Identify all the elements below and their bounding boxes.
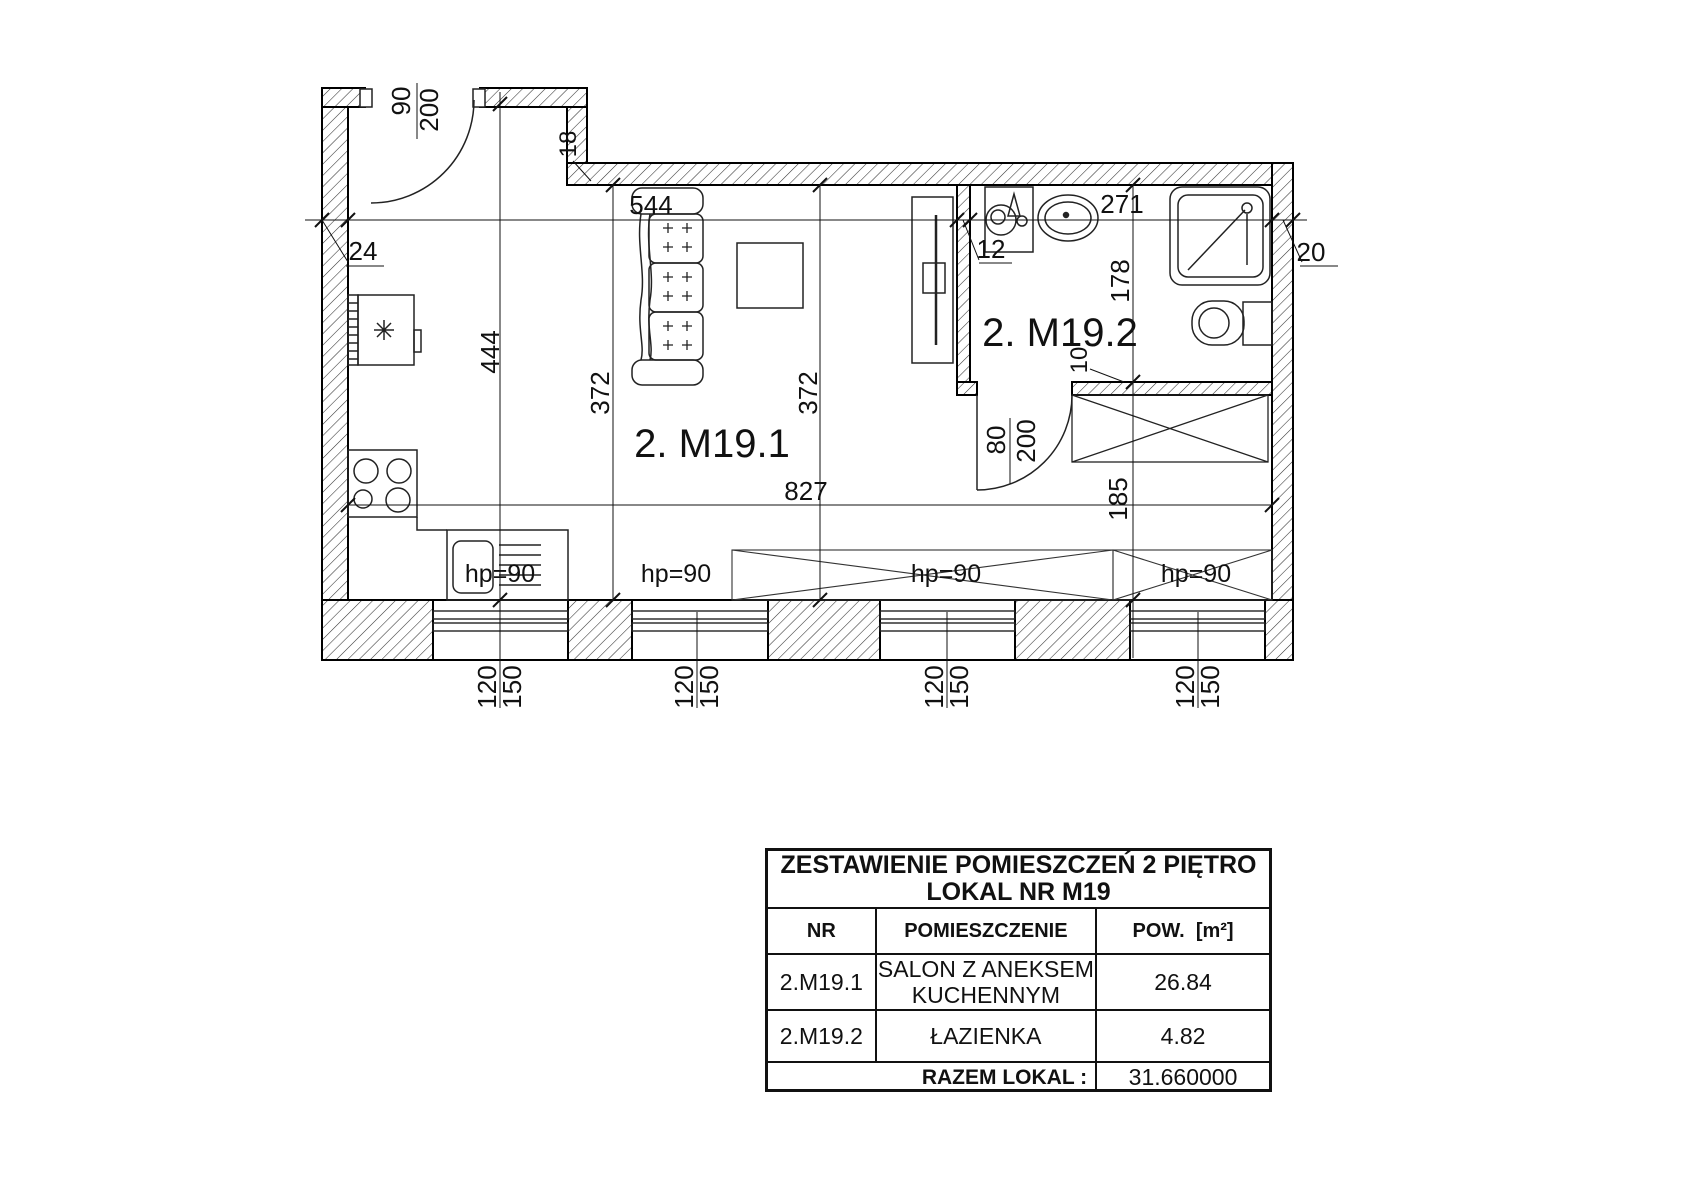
toilet-cistern	[1243, 302, 1272, 345]
toilet-bowl	[1192, 301, 1244, 345]
dim-271: 271	[1100, 189, 1143, 219]
wall-bath-bottom-left	[957, 382, 977, 395]
tv-cabinet	[912, 197, 953, 363]
tv-mount	[923, 263, 945, 293]
table-title: ZESTAWIENIE POMIESZCZEŃ 2 PIĘTRO LOKAL N…	[768, 851, 1269, 907]
wall-pier-1	[322, 600, 433, 660]
kitchen	[348, 295, 568, 600]
window-parapet-label: hp=90	[911, 560, 981, 588]
wall-right	[1272, 163, 1293, 660]
dim-178: 178	[1105, 259, 1135, 302]
wall-top-entry-left	[322, 88, 365, 107]
table-title-line2: LOKAL NR M19	[926, 879, 1110, 906]
hob-burner	[354, 459, 378, 483]
wall-bath-bottom-right	[1072, 382, 1272, 395]
sofa-cushion	[649, 312, 703, 360]
room-schedule-table: ZESTAWIENIE POMIESZCZEŃ 2 PIĘTRO LOKAL N…	[765, 848, 1272, 1092]
wall-top	[567, 163, 1293, 185]
shower-drain	[1242, 203, 1252, 213]
dim-444: 444	[475, 330, 505, 373]
table-title-line1: ZESTAWIENIE POMIESZCZEŃ 2 PIĘTRO	[781, 852, 1257, 879]
entry-door-width: 90	[386, 87, 416, 116]
window-height: 150	[694, 665, 724, 708]
dim-20: 20	[1297, 237, 1326, 267]
fridge-star-icon	[374, 320, 394, 340]
floor-plan-page: 544 271 827 24 12 20 444 372 372 178 185…	[0, 0, 1684, 1190]
wall-top-entry-right	[480, 88, 587, 107]
dim-24: 24	[349, 236, 378, 266]
wall-pier-5	[1265, 600, 1293, 660]
row-room: ŁAZIENKA	[875, 1011, 1095, 1061]
counter-edge	[417, 517, 447, 530]
window-height: 150	[497, 665, 527, 708]
dim-18: 18	[555, 131, 582, 158]
window-parapet-label: hp=90	[1161, 560, 1231, 588]
entry-door-height: 200	[414, 88, 444, 131]
table-total-row: RAZEM LOKAL : 31.660000	[768, 1061, 1269, 1092]
toilet	[1192, 301, 1272, 345]
row-nr: 2.M19.2	[768, 1011, 875, 1061]
fridge-coil	[348, 295, 358, 365]
row-area: 26.84	[1095, 955, 1269, 1009]
shower	[1170, 187, 1270, 285]
wall-pier-4	[1015, 600, 1130, 660]
window-parapet-label: hp=90	[641, 560, 711, 588]
sofa-stitches	[663, 223, 692, 350]
total-label: RAZEM LOKAL :	[768, 1063, 1095, 1092]
dim-372-right: 372	[793, 371, 823, 414]
wall-bath-partition	[957, 185, 970, 395]
bath-door-width: 80	[981, 426, 1011, 455]
header-room: POMIESZCZENIE	[875, 909, 1095, 953]
dim-827: 827	[784, 476, 827, 506]
table-row: 2.M19.2 ŁAZIENKA 4.82	[768, 1009, 1269, 1061]
wall-pier-3	[768, 600, 880, 660]
hob-burner	[387, 459, 411, 483]
washbasin	[1038, 195, 1098, 241]
table-row: 2.M19.1 SALON Z ANEKSEM KUCHENNYM 26.84	[768, 953, 1269, 1009]
sofa-cushion	[649, 263, 703, 312]
window-height: 150	[944, 665, 974, 708]
dim-372-left: 372	[585, 371, 615, 414]
sofa-back	[640, 214, 643, 360]
dim-12: 12	[977, 234, 1006, 264]
dim-185: 185	[1103, 477, 1133, 520]
wardrobe	[1072, 395, 1268, 462]
sofa-cushion	[649, 214, 703, 263]
sofa-armrest-bottom	[632, 360, 703, 385]
row-nr: 2.M19.1	[768, 955, 875, 1009]
entry-door-jamb-right	[473, 89, 485, 107]
room-label-bathroom: 2. M19.2	[982, 311, 1138, 355]
window-parapet-label: hp=90	[465, 560, 535, 588]
row-room: SALON Z ANEKSEM KUCHENNYM	[875, 955, 1095, 1009]
header-area: POW. [m²]	[1095, 909, 1269, 953]
bath-door-height: 200	[1011, 419, 1041, 462]
room-label-living: 2. M19.1	[634, 422, 790, 466]
entry-door-jamb-left	[360, 89, 372, 107]
dim-544: 544	[629, 190, 672, 220]
row-area: 4.82	[1095, 1011, 1269, 1061]
fridge-handle	[414, 330, 421, 352]
total-value: 31.660000	[1095, 1063, 1269, 1092]
shower-diagonal	[1188, 210, 1245, 270]
coffee-table	[737, 243, 803, 308]
table-header-row: NR POMIESZCZENIE POW. [m²]	[768, 907, 1269, 953]
wall-pier-2	[568, 600, 632, 660]
window-2	[632, 611, 768, 619]
window-height: 150	[1195, 665, 1225, 708]
hob-burner	[386, 488, 410, 512]
header-nr: NR	[768, 909, 875, 953]
wall-left	[322, 88, 348, 660]
